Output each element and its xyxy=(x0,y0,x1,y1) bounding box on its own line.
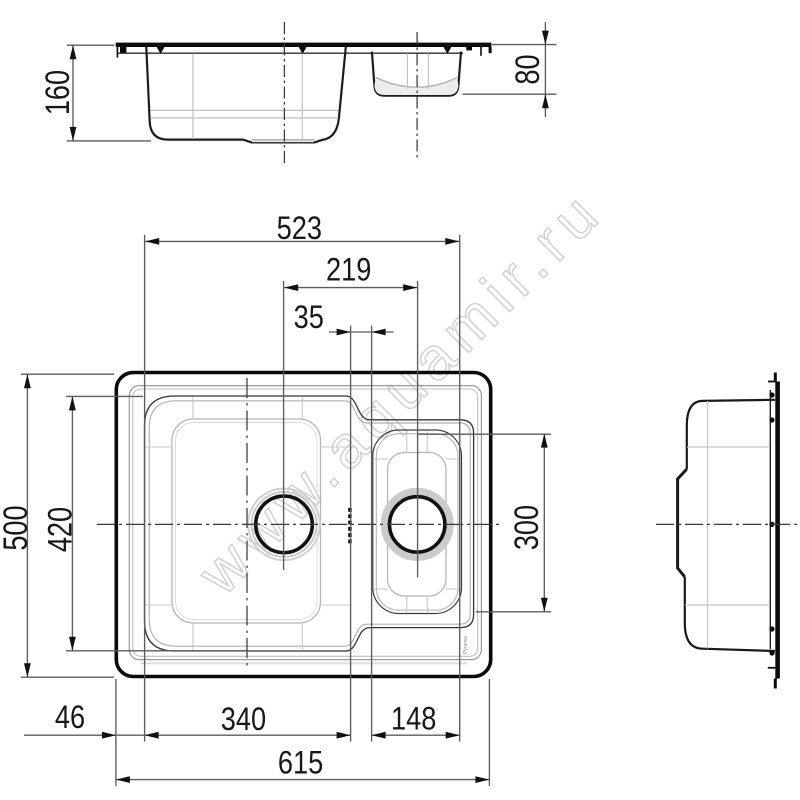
svg-text:420: 420 xyxy=(40,507,79,552)
svg-text:500: 500 xyxy=(0,505,35,550)
svg-text:148: 148 xyxy=(391,702,436,738)
svg-text:35: 35 xyxy=(294,300,324,336)
svg-text:Pyramis: Pyramis xyxy=(463,635,469,654)
svg-text:219: 219 xyxy=(326,252,371,288)
svg-text:80: 80 xyxy=(508,54,547,84)
svg-text:340: 340 xyxy=(221,702,266,738)
svg-text:160: 160 xyxy=(38,70,77,115)
svg-text:615: 615 xyxy=(278,746,323,782)
svg-text:300: 300 xyxy=(507,505,546,550)
svg-text:46: 46 xyxy=(55,700,85,736)
svg-text:523: 523 xyxy=(277,211,322,247)
